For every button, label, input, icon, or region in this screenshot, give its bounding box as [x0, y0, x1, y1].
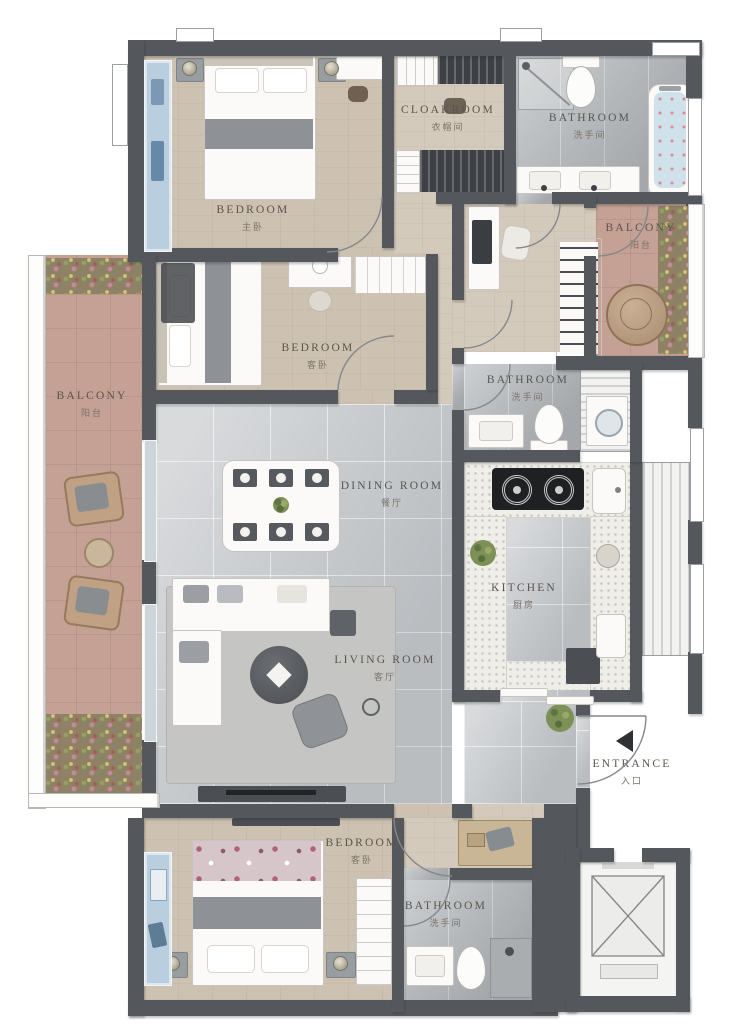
- wall: [576, 788, 590, 850]
- shower-area: [490, 938, 532, 998]
- wall: [566, 996, 690, 1012]
- lamp-icon: [182, 61, 197, 76]
- wall: [426, 254, 438, 390]
- threshold: [404, 868, 450, 880]
- hall-plant: [546, 704, 574, 732]
- cooktop: [492, 468, 584, 510]
- monitor: [472, 220, 492, 264]
- sofa-pillow: [277, 585, 307, 603]
- burner-icon: [502, 475, 532, 505]
- tv: [226, 790, 316, 795]
- bowl: [596, 544, 620, 568]
- stool: [348, 86, 368, 102]
- wall: [392, 818, 404, 1012]
- sofa-pillow: [183, 585, 209, 603]
- window-decor: [148, 922, 168, 949]
- wall: [566, 848, 580, 1010]
- wall: [630, 462, 642, 702]
- wall: [584, 256, 596, 356]
- wall: [142, 390, 338, 404]
- floor-lamp-icon: [362, 698, 380, 716]
- window: [652, 42, 700, 56]
- wall: [584, 196, 596, 208]
- window-bedroom-master: [144, 60, 172, 252]
- window-decor: [150, 869, 167, 901]
- bathtub-water: [654, 92, 686, 188]
- threshold: [452, 364, 464, 410]
- dresser: [336, 56, 386, 80]
- elevator-sill: [602, 862, 654, 869]
- window: [690, 564, 704, 654]
- sofa-pillow: [179, 641, 209, 663]
- floral-duvet: [193, 841, 321, 881]
- exterior-ledge: [112, 64, 128, 146]
- vanity: [406, 946, 454, 986]
- table-decor: [266, 662, 291, 687]
- placemat: [269, 469, 293, 487]
- sofa-chaise: [172, 630, 222, 726]
- kitchen-appliance: [566, 648, 600, 684]
- ottoman: [444, 98, 466, 114]
- wardrobe: [356, 878, 392, 986]
- wall: [142, 560, 156, 604]
- wall: [544, 804, 576, 818]
- pillow: [169, 325, 191, 367]
- toilet: [456, 946, 486, 990]
- wall: [142, 254, 156, 404]
- wall: [142, 804, 394, 818]
- pillow: [261, 945, 309, 973]
- tv-console: [198, 786, 346, 802]
- entrance-arrow-icon: [616, 730, 633, 752]
- balcony-railing-left-bottom: [28, 793, 160, 808]
- sliding-door-panel: [546, 696, 594, 705]
- window-decor: [151, 141, 164, 181]
- wall: [688, 370, 702, 428]
- window-bedroom-bottom: [144, 852, 172, 986]
- wall: [452, 804, 472, 818]
- bed-master: [204, 56, 316, 200]
- tray: [596, 614, 626, 658]
- placemat: [233, 469, 257, 487]
- faucet-icon: [541, 185, 547, 191]
- shoe-cabinet: [458, 820, 534, 866]
- tub-faucet-icon: [659, 86, 681, 91]
- placemat: [305, 523, 329, 541]
- wall: [452, 690, 500, 702]
- shower-glass: [524, 65, 570, 105]
- wall: [128, 1000, 558, 1016]
- wall: [504, 54, 516, 204]
- side-table: [330, 610, 356, 636]
- sink: [479, 421, 513, 441]
- wardrobe-shelves: [396, 150, 420, 194]
- wall: [436, 192, 516, 204]
- pillow: [263, 68, 307, 93]
- exterior-ledge: [500, 28, 542, 42]
- wall: [130, 40, 702, 56]
- lounge-chair: [63, 470, 125, 527]
- placemat: [233, 523, 257, 541]
- balcony-glass-door: [144, 440, 157, 562]
- wall: [552, 192, 702, 204]
- dining-table: [222, 460, 340, 552]
- sliding-door-panel: [500, 688, 548, 697]
- wall: [676, 848, 690, 1010]
- shower-head-icon: [522, 62, 530, 70]
- placemat: [269, 523, 293, 541]
- elevator-panel: [600, 964, 658, 979]
- washing-machine: [586, 396, 628, 446]
- wall: [128, 40, 144, 262]
- wall: [128, 818, 144, 1016]
- threshold: [472, 804, 544, 818]
- shower-head-icon: [505, 947, 514, 956]
- wardrobe-hanging: [420, 150, 504, 192]
- flower-bed: [44, 714, 142, 802]
- threshold: [394, 804, 452, 818]
- coffee-table: [250, 646, 308, 704]
- balcony-glass-door: [144, 604, 157, 742]
- bed-throw: [193, 897, 321, 929]
- wall: [450, 868, 544, 880]
- wall: [556, 356, 702, 370]
- pillow: [215, 68, 259, 93]
- bed-throw: [205, 261, 231, 383]
- wardrobe-unit: [396, 56, 438, 86]
- centerpiece-plant: [273, 497, 289, 513]
- wall: [688, 652, 702, 714]
- balcony-railing-left: [28, 255, 46, 809]
- washer-drum-icon: [595, 409, 623, 437]
- threshold: [338, 390, 394, 404]
- sofa-main: [172, 578, 330, 632]
- lamp-icon: [324, 61, 339, 76]
- wall: [452, 450, 580, 462]
- box: [467, 833, 485, 847]
- wall: [394, 390, 438, 404]
- wall: [452, 348, 464, 364]
- kitchen-plant: [470, 540, 496, 566]
- bed-bottom: [192, 840, 324, 986]
- faucet-icon: [591, 185, 597, 191]
- bed-throw: [205, 119, 313, 149]
- floor-plan: BEDROOM 主卧 CLOAKROOM 衣帽间 BATHROOM 洗手间 BA…: [0, 0, 740, 1031]
- exterior-ledge: [176, 28, 214, 42]
- floor-kitchen-center: [505, 516, 591, 662]
- vanity-double: [516, 166, 640, 194]
- window: [688, 98, 702, 196]
- lounge-chair: [63, 574, 125, 631]
- rattan-table-detail: [620, 298, 652, 330]
- kitchen-sink: [592, 468, 626, 514]
- tv-bedroom: [232, 818, 340, 826]
- threshold-entrance: [576, 714, 590, 788]
- sink: [415, 955, 445, 977]
- toilet: [534, 404, 564, 444]
- window-decor: [151, 79, 164, 105]
- side-table: [84, 538, 114, 568]
- wall: [142, 404, 156, 440]
- wall: [688, 520, 702, 564]
- burner-icon: [544, 475, 574, 505]
- chair-cushion: [74, 482, 109, 512]
- wall: [630, 364, 642, 462]
- bed-middle: [158, 260, 262, 386]
- toilet: [566, 66, 596, 108]
- sofa-pillow: [217, 585, 243, 603]
- threshold: [452, 300, 464, 348]
- wall: [382, 54, 394, 248]
- balcony-railing-right: [688, 204, 705, 358]
- wall: [452, 204, 464, 300]
- headboard: [205, 57, 313, 66]
- pillow: [207, 945, 255, 973]
- vanity-chair: [308, 290, 332, 312]
- wall: [452, 462, 464, 702]
- lamp-icon: [333, 956, 348, 971]
- planter-box: [44, 258, 142, 294]
- handbag: [485, 826, 515, 852]
- vanity: [468, 414, 524, 448]
- chair-cushion: [75, 586, 110, 616]
- faucet-icon: [615, 487, 621, 493]
- wardrobe-hanging: [438, 56, 504, 84]
- placemat: [305, 469, 329, 487]
- ac-platform: [642, 462, 690, 656]
- window: [690, 428, 704, 522]
- dark-artwork: [161, 263, 195, 323]
- shelf-unit: [354, 256, 426, 294]
